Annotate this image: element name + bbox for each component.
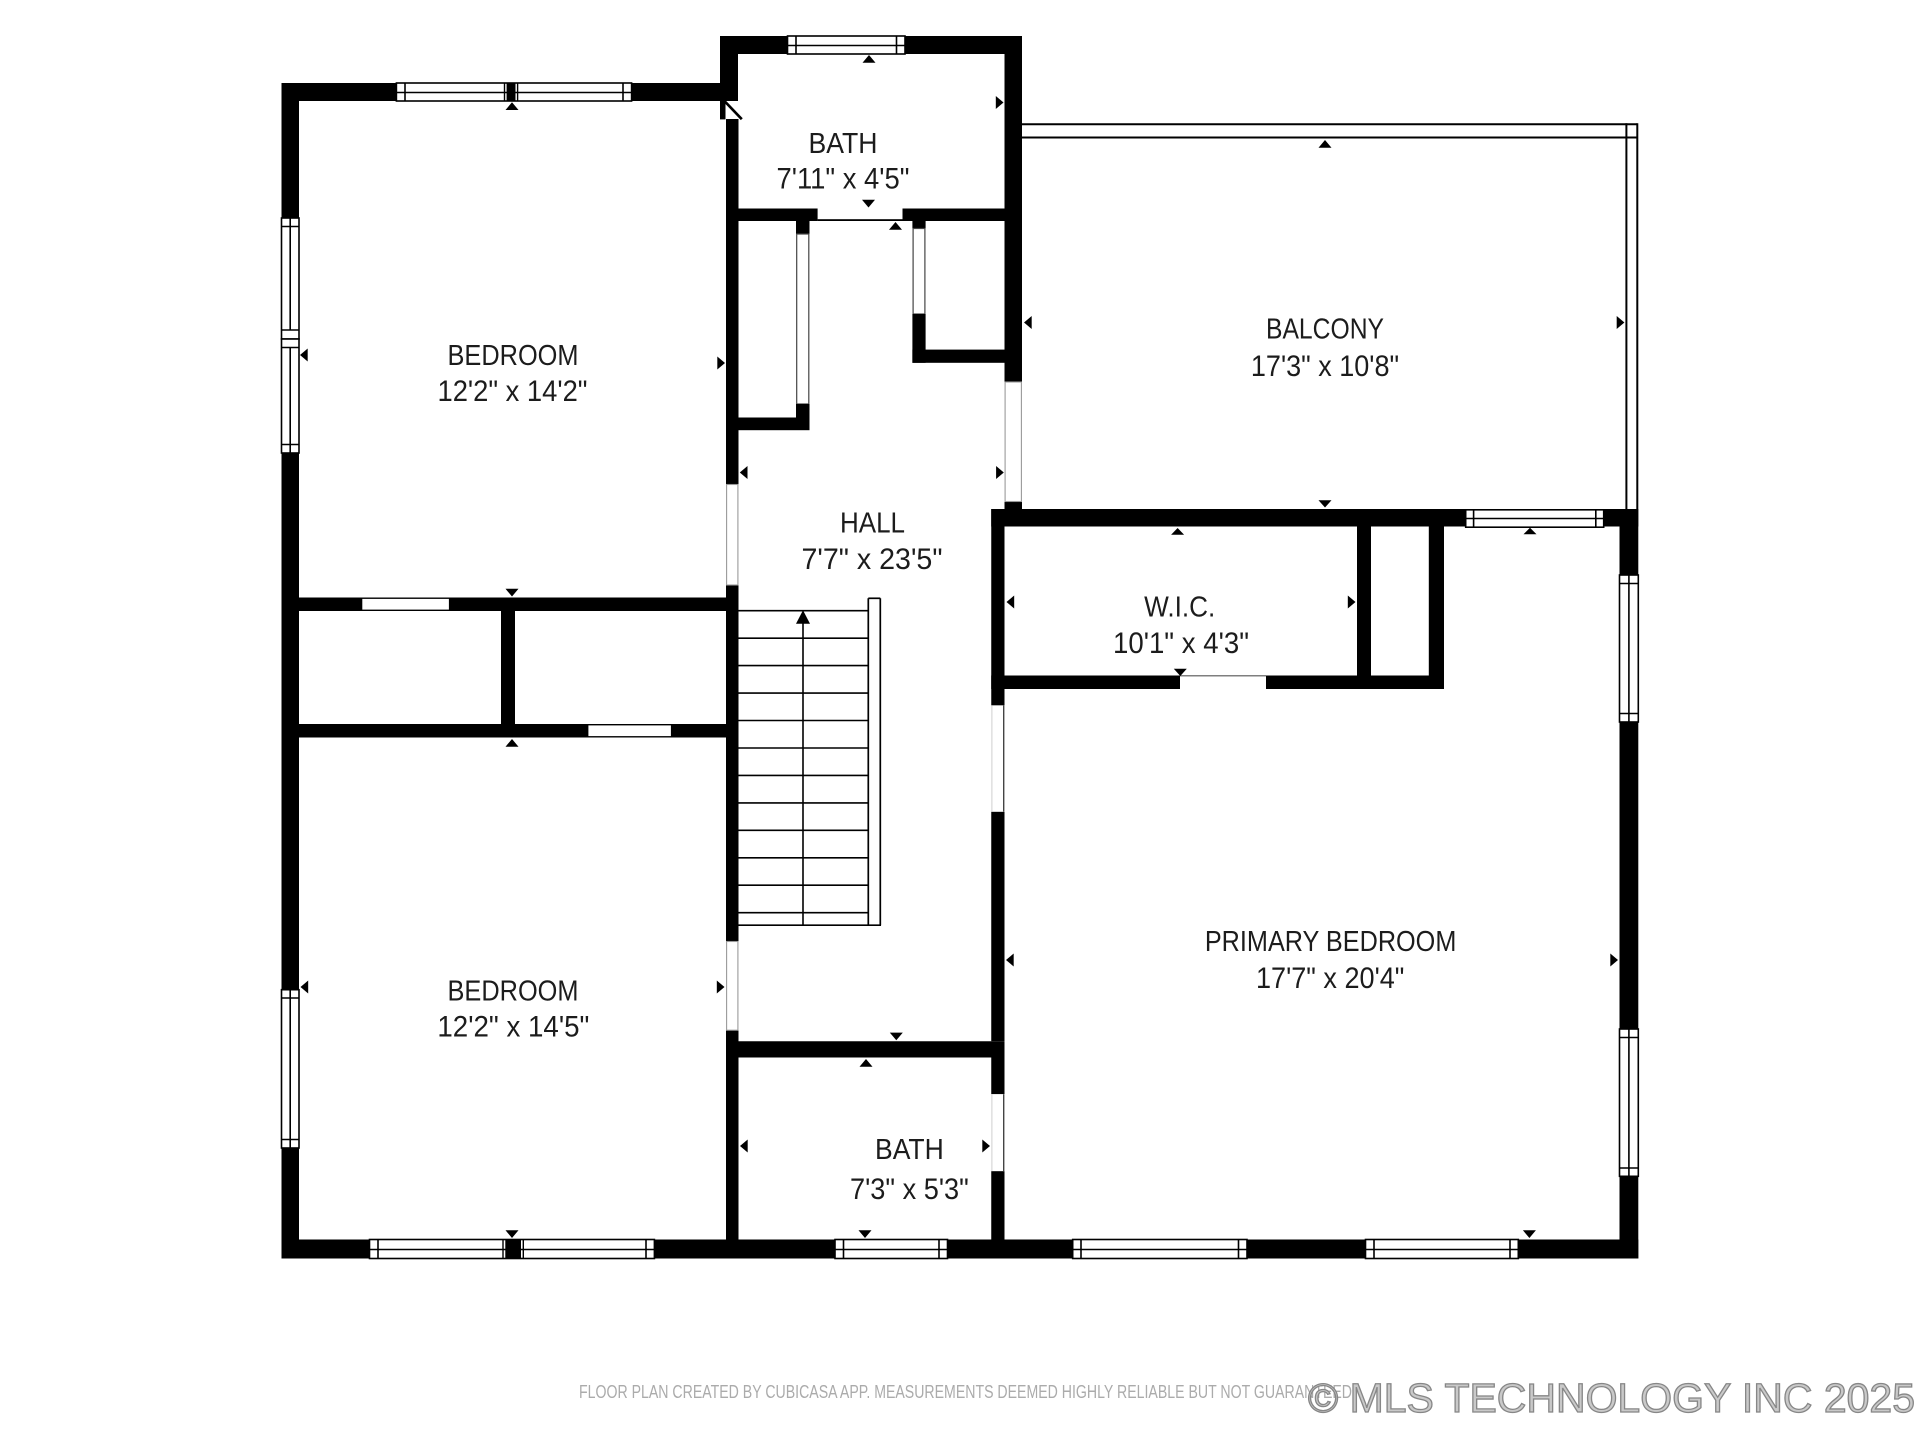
- svg-text:BEDROOM: BEDROOM: [448, 340, 579, 372]
- svg-text:© MLS TECHNOLOGY INC 2025: © MLS TECHNOLOGY INC 2025: [1308, 1375, 1915, 1421]
- svg-text:17'7" x 20'4": 17'7" x 20'4": [1256, 962, 1404, 995]
- svg-text:17'3" x 10'8": 17'3" x 10'8": [1251, 350, 1399, 383]
- svg-text:BEDROOM: BEDROOM: [448, 976, 579, 1008]
- svg-text:12'2" x 14'2": 12'2" x 14'2": [438, 375, 588, 408]
- svg-text:BATH: BATH: [875, 1134, 944, 1166]
- svg-text:10'1" x 4'3": 10'1" x 4'3": [1113, 627, 1249, 660]
- svg-text:FLOOR PLAN CREATED BY CUBICASA: FLOOR PLAN CREATED BY CUBICASA APP. MEAS…: [579, 1382, 1352, 1402]
- svg-text:7'11" x 4'5": 7'11" x 4'5": [777, 163, 910, 196]
- svg-text:BATH: BATH: [809, 128, 878, 160]
- svg-text:7'3" x 5'3": 7'3" x 5'3": [850, 1173, 969, 1206]
- svg-text:W.I.C.: W.I.C.: [1144, 592, 1215, 624]
- svg-text:BALCONY: BALCONY: [1266, 313, 1384, 345]
- svg-text:12'2" x 14'5": 12'2" x 14'5": [437, 1011, 589, 1044]
- svg-text:HALL: HALL: [840, 508, 905, 540]
- svg-text:7'7" x 23'5": 7'7" x 23'5": [802, 543, 943, 576]
- svg-text:PRIMARY BEDROOM: PRIMARY BEDROOM: [1205, 926, 1457, 958]
